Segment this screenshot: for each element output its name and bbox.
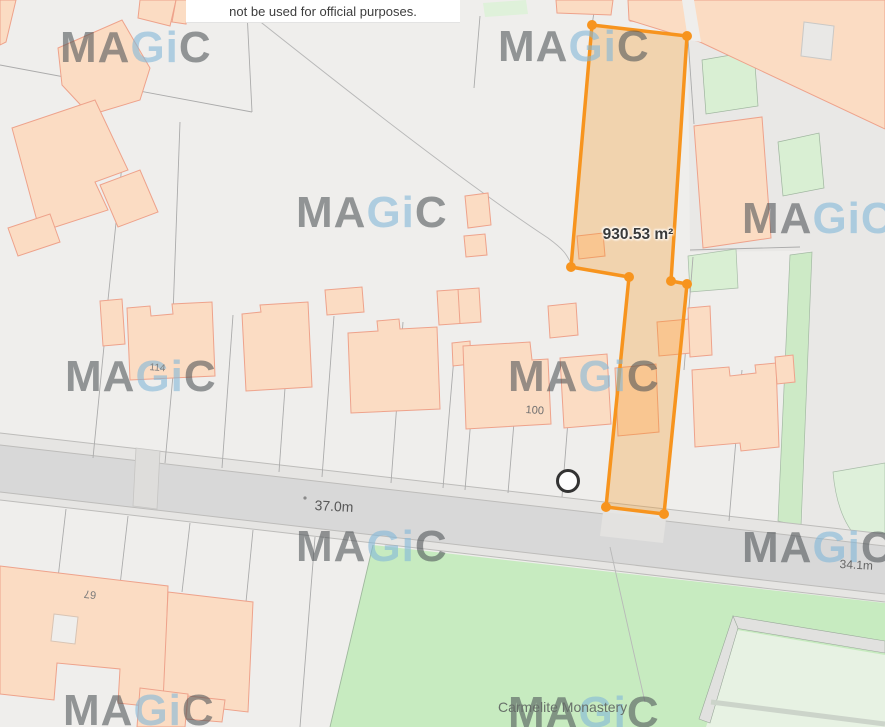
monastery-label: Carmelite Monastery (498, 699, 627, 715)
map-canvas[interactable] (0, 0, 885, 727)
green-parcel-3 (688, 249, 738, 292)
magic-map-viewport[interactable]: not be used for official purposes. MAGiC… (0, 0, 885, 727)
house-number-100: 100 (525, 404, 544, 417)
house-number-67: 67 (83, 587, 97, 600)
point-marker-circle[interactable] (558, 471, 579, 492)
disclaimer-banner: not be used for official purposes. (186, 0, 460, 23)
road-width-label: 37.0m (314, 497, 354, 515)
selected-parcel-area-label: 930.53 m² (576, 226, 700, 244)
green-parcel-top (483, 0, 528, 17)
house-number-114: 114 (149, 362, 166, 374)
road-width-label-right: 34.1m (839, 557, 873, 573)
road-junction (133, 448, 160, 509)
green-parcel-2 (778, 133, 824, 196)
